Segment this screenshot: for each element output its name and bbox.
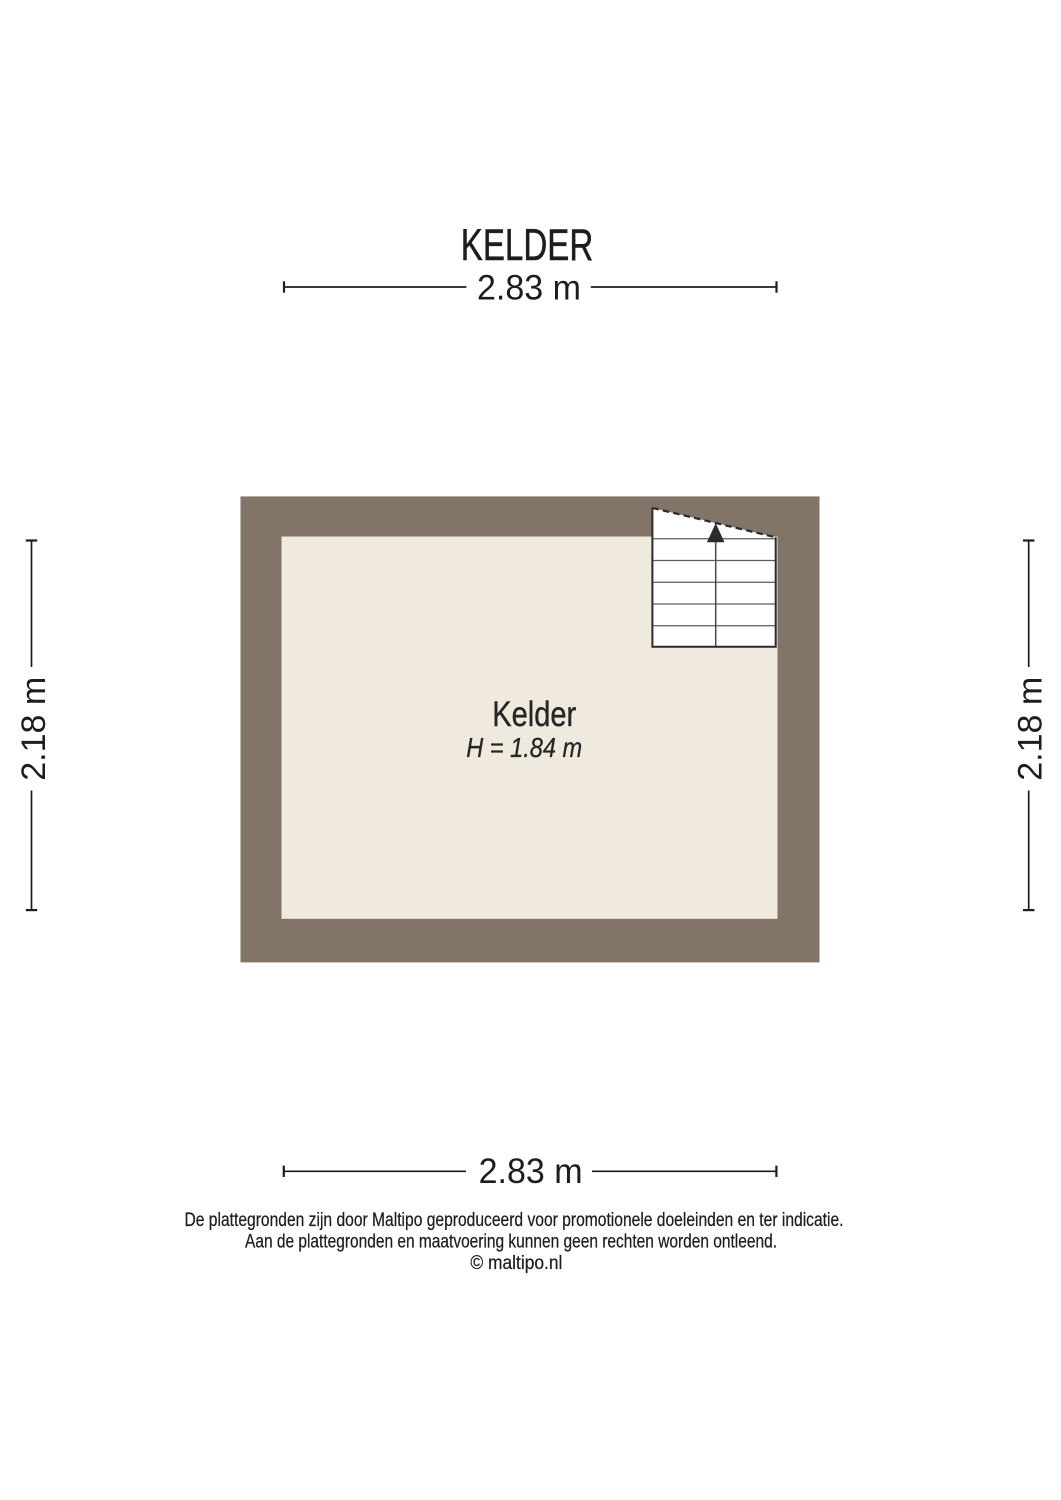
svg-text:2.18 m: 2.18 m [1011,677,1049,781]
svg-text:Aan de plattegronden en maatvo: Aan de plattegronden en maatvoering kunn… [245,1232,777,1253]
svg-text:2.83 m: 2.83 m [479,1152,583,1191]
svg-text:2.18 m: 2.18 m [15,677,53,781]
svg-text:Kelder: Kelder [492,695,576,734]
svg-text:De plattegronden zijn door Mal: De plattegronden zijn door Maltipo gepro… [185,1210,844,1231]
svg-text:KELDER: KELDER [461,221,594,270]
svg-text:2.83 m: 2.83 m [477,269,581,308]
svg-text:© maltipo.nl: © maltipo.nl [470,1253,562,1274]
svg-text:H = 1.84 m: H = 1.84 m [466,732,582,763]
